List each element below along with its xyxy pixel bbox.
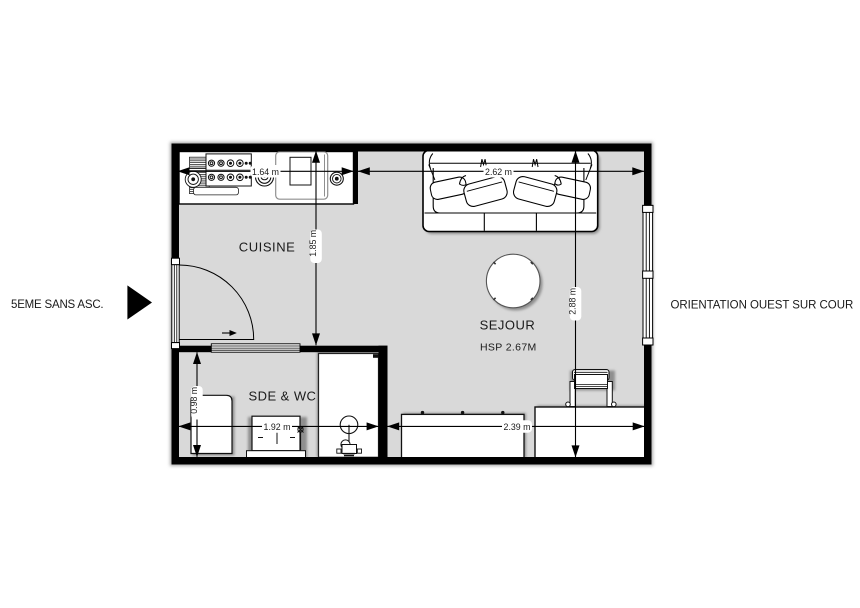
svg-text:CUISINE: CUISINE (239, 240, 296, 255)
svg-text:2.62 m: 2.62 m (485, 167, 512, 177)
svg-text:1.85 m: 1.85 m (308, 230, 318, 257)
svg-text:SEJOUR: SEJOUR (480, 318, 536, 333)
svg-text:1.92 m: 1.92 m (264, 422, 291, 432)
svg-text:HSP 2.67M: HSP 2.67M (480, 342, 537, 354)
svg-text:2.39 m: 2.39 m (504, 422, 531, 432)
svg-text:2.88 m: 2.88 m (568, 288, 578, 315)
svg-text:ORIENTATION OUEST SUR COUR: ORIENTATION OUEST SUR COUR (671, 300, 854, 312)
svg-text:SDE & WC: SDE & WC (249, 389, 317, 404)
svg-text:1.64 m: 1.64 m (252, 167, 279, 177)
svg-text:5EME SANS ASC.: 5EME SANS ASC. (11, 299, 103, 311)
svg-text:0.98 m: 0.98 m (189, 387, 199, 414)
